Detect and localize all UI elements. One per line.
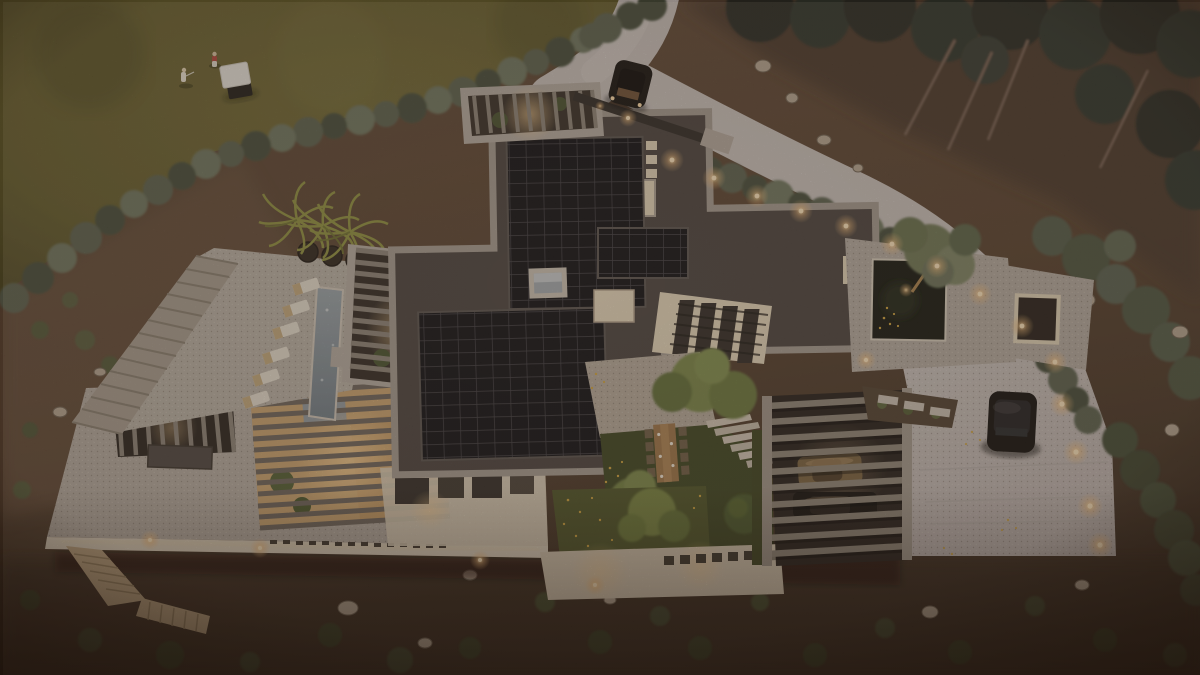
villa-render-stage	[0, 0, 1200, 675]
atmosphere	[0, 0, 1200, 675]
corner-vignette	[0, 0, 1200, 675]
aerial-villa-render	[0, 0, 1200, 675]
